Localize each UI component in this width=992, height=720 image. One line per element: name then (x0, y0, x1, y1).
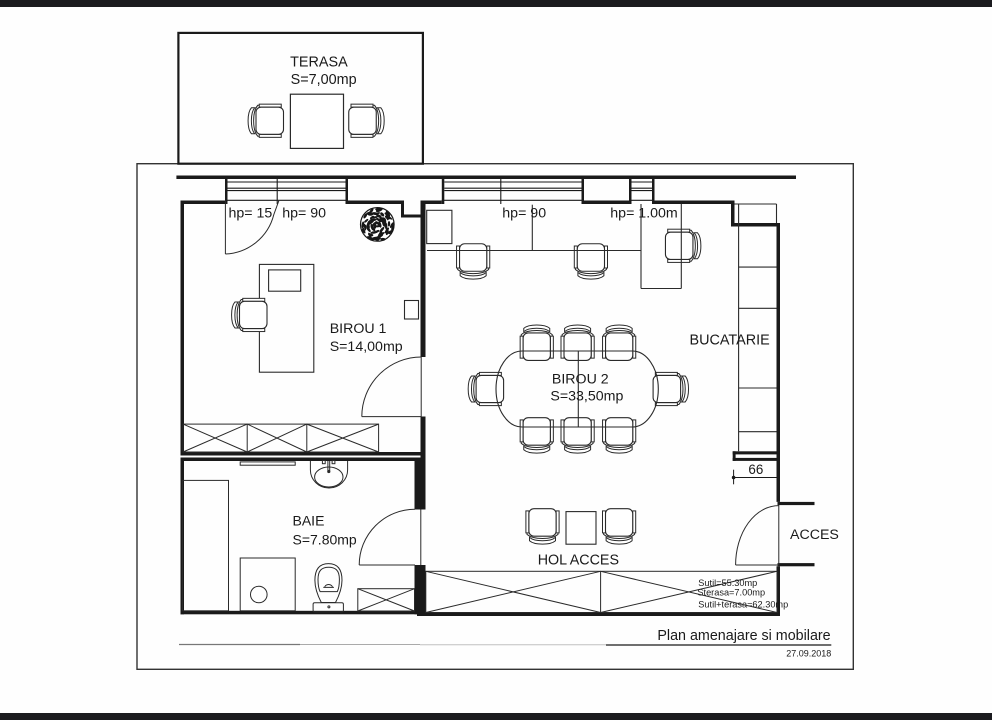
svg-text:BUCATARIE: BUCATARIE (690, 333, 770, 349)
svg-text:ACCES: ACCES (790, 527, 839, 543)
svg-text:Sterasa=7.00mp: Sterasa=7.00mp (697, 587, 765, 597)
svg-text:hp= 90: hp= 90 (282, 205, 326, 221)
svg-text:Plan amenajare si mobilare: Plan amenajare si mobilare (657, 628, 830, 644)
svg-text:S=33,50mp: S=33,50mp (550, 388, 623, 404)
svg-text:S=7.80mp: S=7.80mp (293, 531, 357, 547)
svg-text:BIROU 2: BIROU 2 (552, 372, 609, 388)
svg-text:27.09.2018: 27.09.2018 (786, 648, 831, 658)
svg-text:hp= 15: hp= 15 (229, 205, 273, 221)
svg-text:BAIE: BAIE (293, 512, 325, 528)
svg-text:66: 66 (748, 462, 763, 477)
svg-text:BIROU 1: BIROU 1 (330, 321, 387, 337)
svg-text:TERASA: TERASA (290, 55, 348, 71)
svg-text:Sutil+terasa=62.30mp: Sutil+terasa=62.30mp (698, 599, 788, 609)
svg-text:S=7,00mp: S=7,00mp (291, 72, 357, 88)
svg-text:hp= 1.00m: hp= 1.00m (610, 205, 677, 221)
svg-text:hp= 90: hp= 90 (502, 205, 546, 221)
svg-text:HOL ACCES: HOL ACCES (538, 552, 619, 568)
svg-text:S=14,00mp: S=14,00mp (330, 339, 403, 355)
